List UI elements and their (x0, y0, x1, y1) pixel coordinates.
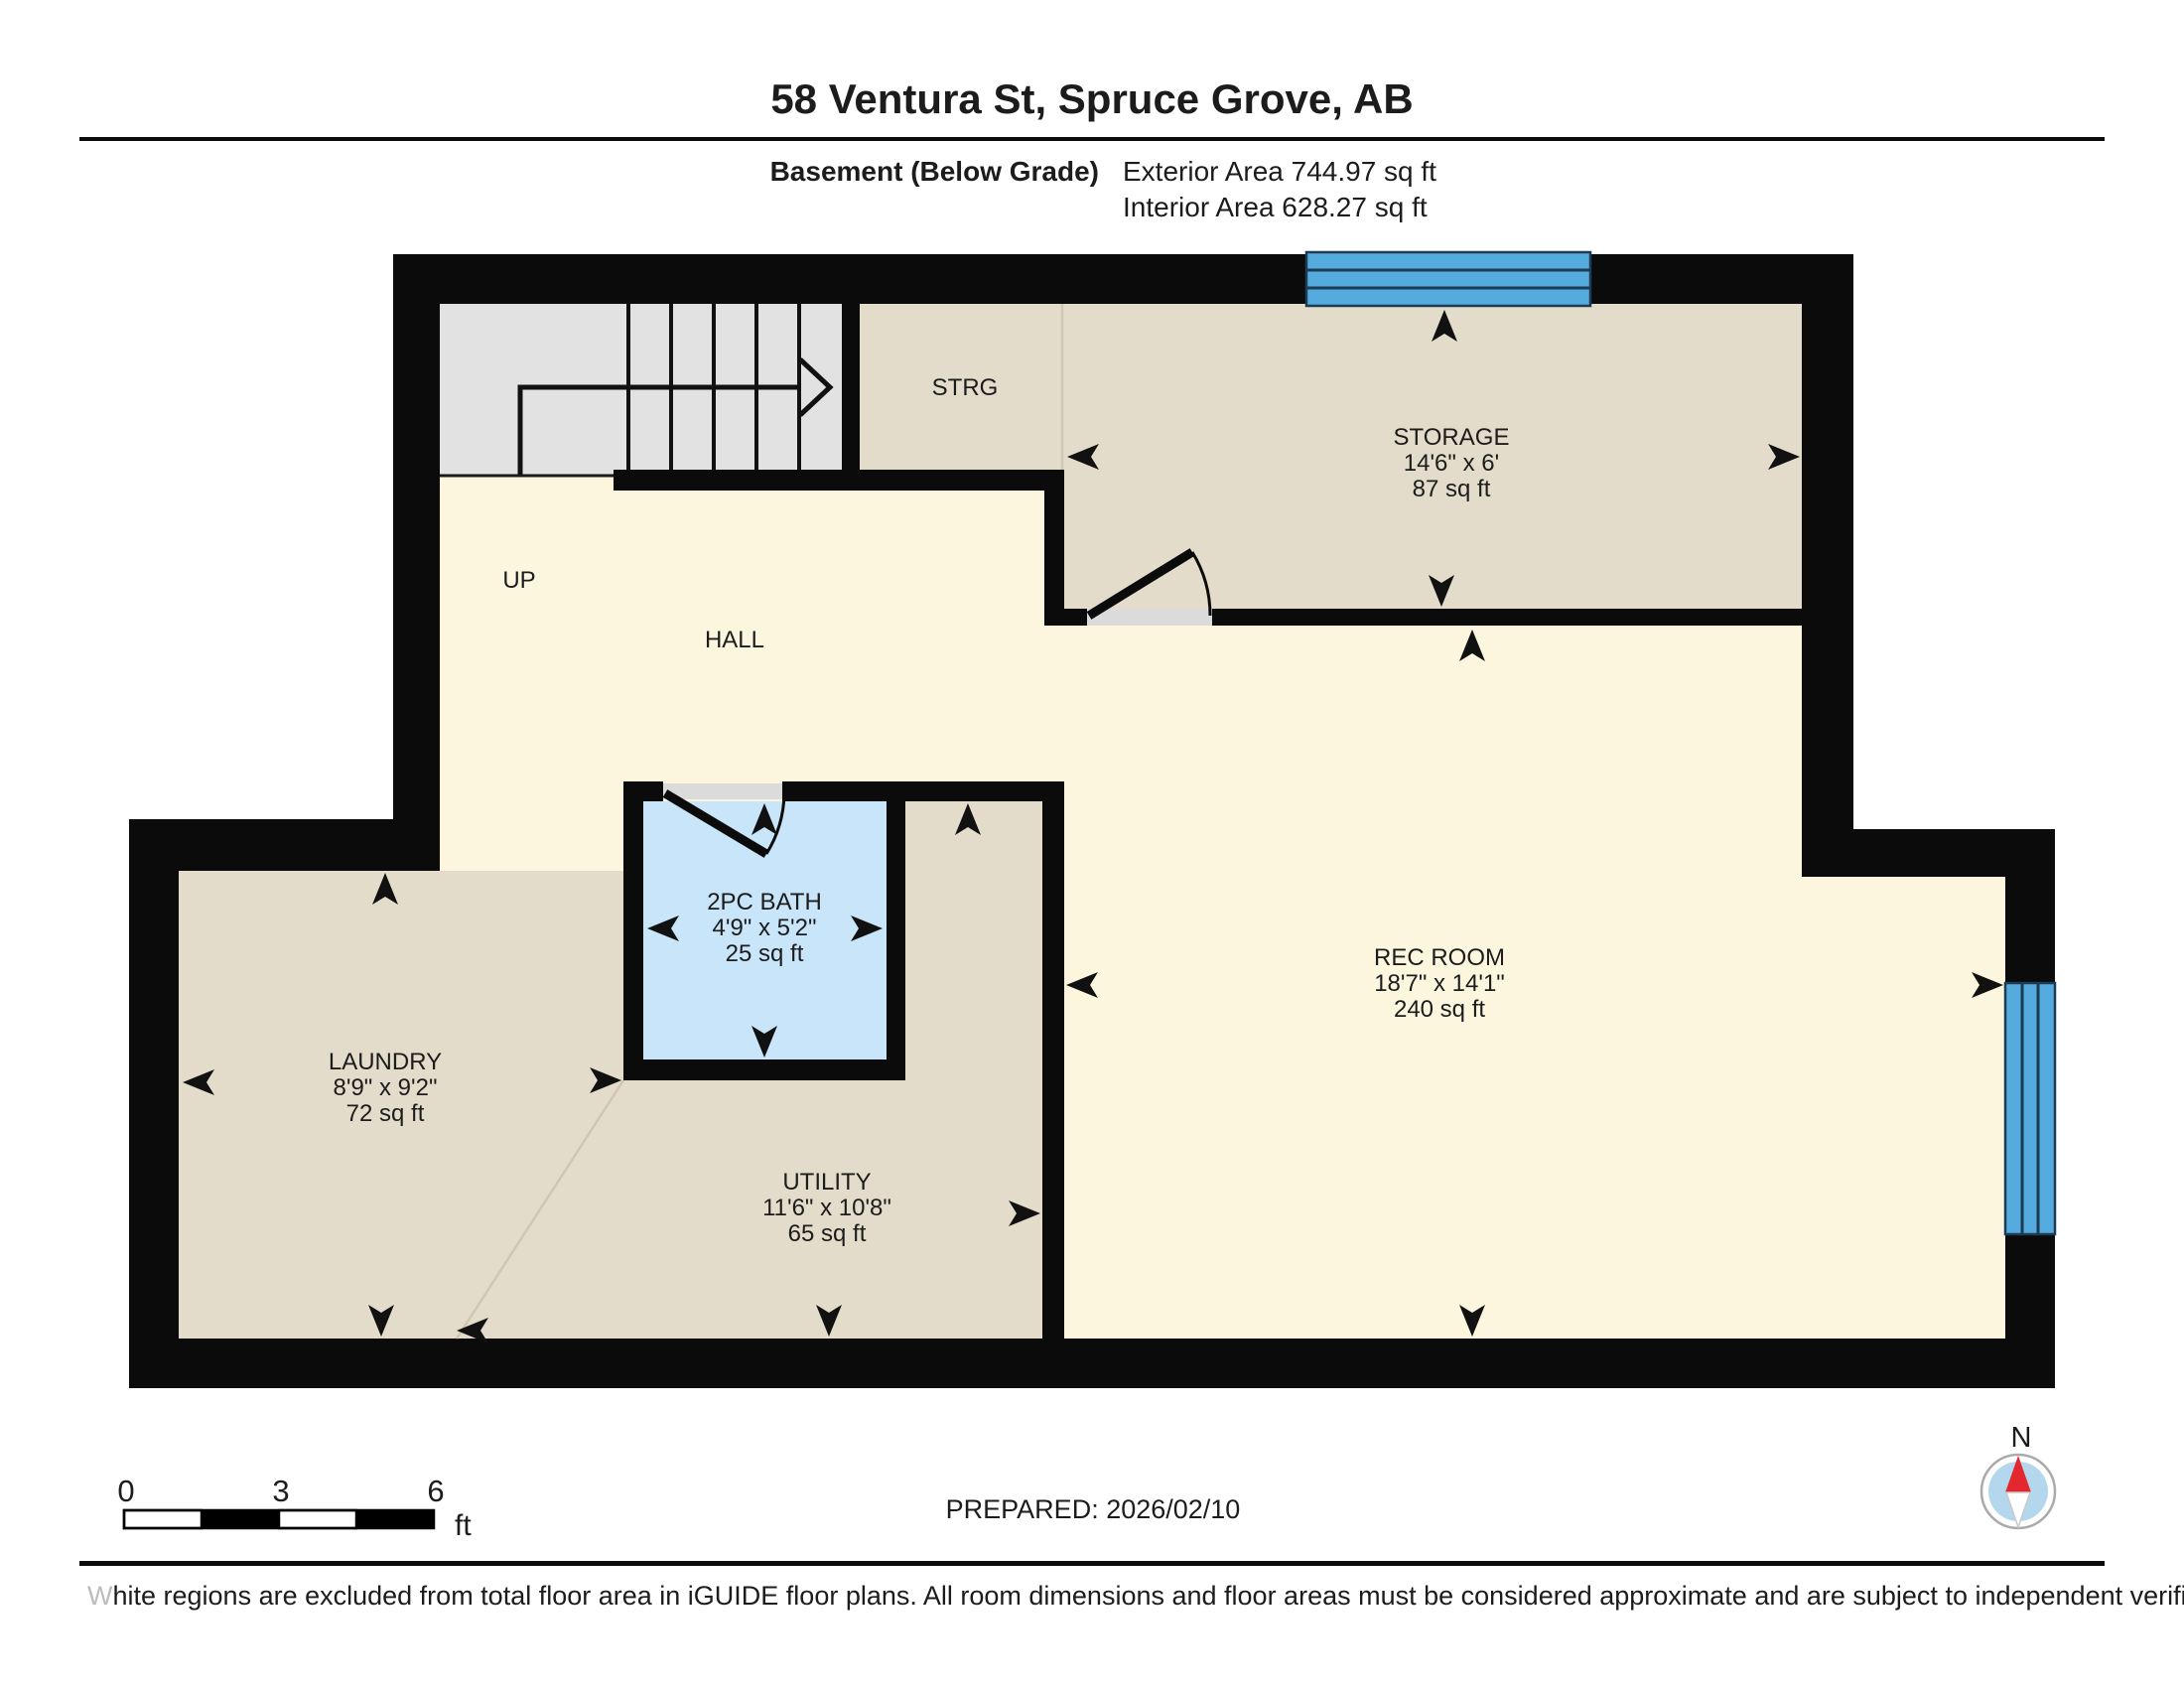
svg-text:LAUNDRY: LAUNDRY (329, 1049, 442, 1075)
floor-plan-canvas: 58 Ventura St, Spruce Grove, AB Basement… (0, 0, 2184, 1688)
storage-door-threshold (1087, 609, 1212, 626)
interior-area-label: Interior Area 628.27 sq ft (1123, 192, 1428, 222)
svg-text:87 sq ft: 87 sq ft (1413, 476, 1491, 502)
svg-text:UTILITY: UTILITY (782, 1169, 871, 1196)
window-right-icon (2005, 983, 2055, 1234)
label-hall: HALL (705, 627, 764, 653)
svg-text:8'9" x 9'2": 8'9" x 9'2" (334, 1074, 438, 1101)
room-stairs (440, 304, 842, 477)
footer-disclaimer-text: hite regions are excluded from total flo… (112, 1581, 2184, 1611)
window-top-icon (1306, 252, 1590, 306)
scale-tick-3: 3 (272, 1474, 289, 1508)
floor-plan-page: 58 Ventura St, Spruce Grove, AB Basement… (0, 0, 2184, 1688)
svg-text:25 sq ft: 25 sq ft (726, 940, 804, 967)
svg-text:2PC BATH: 2PC BATH (707, 889, 822, 916)
scale-bar: 0 3 6 ft (117, 1474, 472, 1542)
svg-text:4'9" x 5'2": 4'9" x 5'2" (713, 915, 817, 941)
floor-label: Basement (Below Grade) (770, 156, 1099, 187)
svg-text:14'6" x 6': 14'6" x 6' (1404, 450, 1499, 477)
footer-disclaimer-first-letter: W (87, 1581, 113, 1611)
title-divider (79, 137, 2105, 141)
page-title: 58 Ventura St, Spruce Grove, AB (770, 75, 1413, 122)
label-up: UP (502, 567, 535, 594)
exterior-area-label: Exterior Area 744.97 sq ft (1123, 156, 1436, 187)
compass-north-label: N (2011, 1422, 2032, 1454)
svg-text:65 sq ft: 65 sq ft (788, 1220, 867, 1247)
svg-text:72 sq ft: 72 sq ft (346, 1100, 425, 1127)
label-strg: STRG (932, 374, 999, 401)
room-utility-side (905, 801, 1042, 1339)
bath-door-threshold (663, 783, 782, 799)
compass-icon: N (1981, 1422, 2055, 1528)
svg-text:STORAGE: STORAGE (1394, 424, 1510, 451)
scale-tick-0: 0 (117, 1474, 134, 1508)
scale-unit: ft (455, 1509, 472, 1542)
svg-text:REC ROOM: REC ROOM (1374, 944, 1505, 971)
svg-text:11'6" x 10'8": 11'6" x 10'8" (762, 1195, 891, 1221)
svg-text:240 sq ft: 240 sq ft (1394, 996, 1485, 1023)
footer-disclaimer: White regions are excluded from total fl… (87, 1581, 2184, 1611)
footer-divider (79, 1561, 2105, 1566)
scale-tick-6: 6 (427, 1474, 444, 1508)
svg-text:18'7" x 14'1": 18'7" x 14'1" (1374, 970, 1505, 997)
prepared-date: PREPARED: 2026/02/10 (946, 1494, 1241, 1524)
floor-plan: UP HALL STRG STORAGE 14'6" x 6' 87 sq ft… (129, 252, 2055, 1388)
